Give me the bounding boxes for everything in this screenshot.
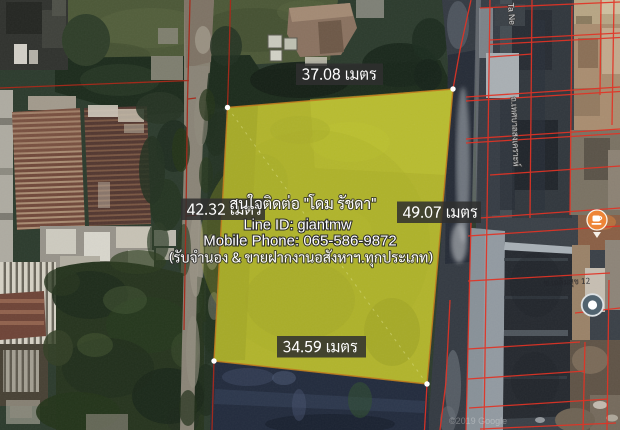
- svg-text:©2019 Google: ©2019 Google: [449, 416, 507, 426]
- svg-text:Line ID: giantmw: Line ID: giantmw: [244, 218, 353, 234]
- svg-text:Ta Ne: Ta Ne: [506, 2, 518, 25]
- svg-text:Mobile Phone: 065-586-9872: Mobile Phone: 065-586-9872: [203, 233, 396, 250]
